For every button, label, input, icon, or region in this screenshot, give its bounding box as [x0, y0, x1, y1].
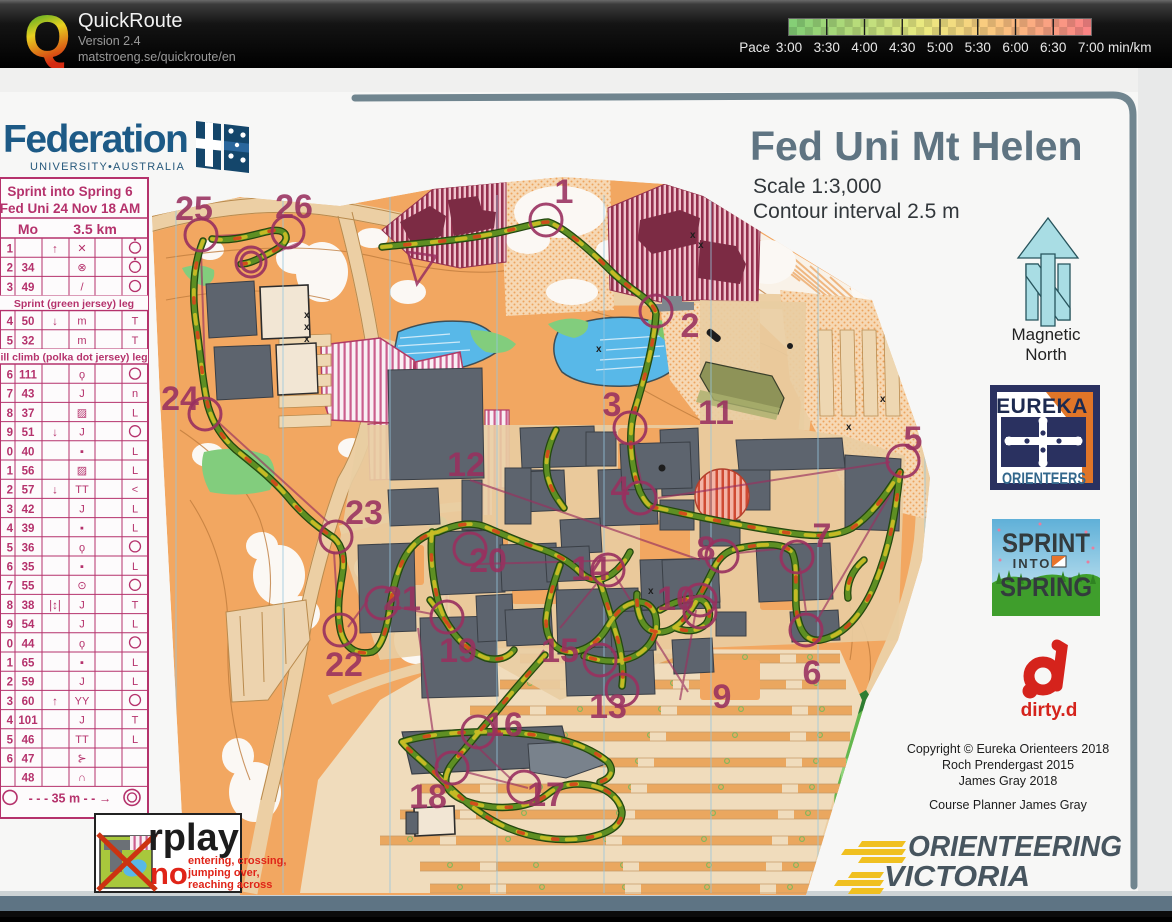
svg-text:9: 9	[7, 427, 13, 439]
svg-text:SPRING: SPRING	[1000, 572, 1092, 602]
svg-text:J: J	[79, 619, 85, 631]
svg-text:6: 6	[7, 370, 13, 382]
svg-text:24: 24	[161, 380, 199, 418]
svg-text:4: 4	[7, 715, 14, 727]
svg-text:7: 7	[7, 581, 13, 593]
svg-text:L: L	[132, 561, 138, 573]
svg-text:↓: ↓	[52, 427, 58, 439]
svg-text:40: 40	[22, 446, 35, 458]
svg-text:38: 38	[22, 600, 35, 612]
svg-text:L: L	[132, 503, 138, 515]
svg-text:✕: ✕	[77, 243, 86, 255]
svg-text:5:30: 5:30	[965, 40, 991, 55]
svg-text:reaching across: reaching across	[188, 879, 272, 891]
svg-text:dirty.d: dirty.d	[1021, 700, 1078, 721]
svg-text:59: 59	[22, 677, 35, 689]
svg-text:3:00: 3:00	[776, 40, 802, 55]
svg-text:ϙ: ϙ	[79, 638, 85, 650]
svg-text:21: 21	[383, 580, 421, 618]
svg-text:⊙: ⊙	[77, 580, 86, 592]
svg-text:60: 60	[22, 696, 35, 708]
svg-text:J: J	[79, 388, 85, 400]
svg-text:<: <	[132, 484, 138, 496]
svg-text:16: 16	[485, 706, 523, 744]
svg-text:3:30: 3:30	[814, 40, 840, 55]
svg-text:36: 36	[22, 542, 35, 554]
svg-text:35: 35	[22, 562, 35, 574]
svg-text:UNIVERSITY•AUSTRALIA: UNIVERSITY•AUSTRALIA	[30, 161, 185, 173]
svg-text:20: 20	[469, 542, 507, 580]
svg-text:L: L	[132, 657, 138, 669]
svg-text:J: J	[79, 427, 85, 439]
svg-text:37: 37	[22, 408, 35, 420]
svg-text:ORIENTEERS: ORIENTEERS	[1002, 469, 1086, 488]
svg-text:2: 2	[7, 263, 13, 275]
svg-text:Scale 1:3,000: Scale 1:3,000	[753, 175, 881, 198]
svg-text:Contour interval 2.5 m: Contour interval 2.5 m	[753, 200, 960, 223]
svg-text:46: 46	[22, 734, 35, 746]
svg-text:Fed Uni 24 Nov 18 AM: Fed Uni 24 Nov 18 AM	[0, 201, 140, 216]
svg-text:Course Planner James Gray: Course Planner James Gray	[929, 798, 1087, 812]
svg-text:39: 39	[22, 523, 35, 535]
svg-text:7:00: 7:00	[1078, 40, 1104, 55]
svg-text:▪: ▪	[80, 523, 84, 535]
svg-text:32: 32	[22, 335, 35, 347]
svg-text:26: 26	[275, 188, 313, 226]
svg-text:4: 4	[7, 523, 14, 535]
svg-text:no: no	[150, 856, 188, 891]
svg-text:↑: ↑	[52, 696, 58, 708]
svg-text:4: 4	[7, 316, 14, 328]
svg-text:▨: ▨	[77, 407, 87, 419]
svg-text:9: 9	[713, 678, 732, 716]
svg-text:Pace: Pace	[739, 40, 770, 55]
svg-text:▪: ▪	[80, 657, 84, 669]
svg-text:jumping over,: jumping over,	[187, 867, 260, 879]
svg-text:Version 2.4: Version 2.4	[78, 34, 141, 48]
svg-text:47: 47	[22, 754, 35, 766]
svg-text:↓: ↓	[52, 316, 58, 328]
svg-text:x: x	[596, 344, 602, 355]
svg-text:4:00: 4:00	[851, 40, 877, 55]
svg-text:▨: ▨	[77, 465, 87, 477]
svg-text:15: 15	[541, 632, 579, 670]
svg-text:12: 12	[447, 446, 485, 484]
svg-text:42: 42	[22, 504, 35, 516]
svg-text:∩: ∩	[78, 772, 86, 784]
svg-text:VICTORIA: VICTORIA	[884, 861, 1030, 893]
svg-text:5: 5	[904, 420, 923, 458]
svg-text:7: 7	[813, 517, 832, 555]
svg-text:x: x	[648, 586, 654, 597]
svg-text:2: 2	[7, 485, 13, 497]
svg-text:6:00: 6:00	[1002, 40, 1028, 55]
svg-text:23: 23	[345, 494, 383, 532]
svg-text:6: 6	[7, 562, 13, 574]
svg-text:5: 5	[7, 335, 14, 347]
svg-text:Copyright © Eureka Orienteers: Copyright © Eureka Orienteers 2018	[907, 742, 1109, 756]
svg-text:1: 1	[7, 466, 14, 478]
svg-text:8: 8	[7, 408, 14, 420]
svg-text:17: 17	[527, 776, 565, 814]
svg-text:Q: Q	[24, 3, 71, 70]
svg-text:4: 4	[611, 470, 630, 508]
svg-text:m: m	[77, 335, 86, 347]
svg-text:19: 19	[439, 632, 477, 670]
svg-text:56: 56	[22, 466, 35, 478]
svg-text:L: L	[132, 676, 138, 688]
svg-text:⊗: ⊗	[77, 262, 86, 274]
svg-text:x: x	[880, 394, 886, 405]
svg-text:10: 10	[657, 580, 695, 618]
svg-text:James Gray 2018: James Gray 2018	[959, 774, 1058, 788]
svg-text:5: 5	[7, 734, 14, 746]
svg-text:L: L	[132, 734, 138, 746]
svg-text:QuickRoute: QuickRoute	[78, 10, 183, 32]
svg-text:L: L	[132, 523, 138, 535]
svg-text:▪: ▪	[80, 561, 84, 573]
svg-text:6:30: 6:30	[1040, 40, 1066, 55]
svg-text:ill climb (polka dot jersey) l: ill climb (polka dot jersey) leg	[0, 352, 147, 364]
svg-text:18: 18	[409, 778, 447, 816]
svg-text:L: L	[132, 446, 138, 458]
svg-text:T: T	[132, 335, 139, 347]
svg-text:3: 3	[7, 696, 13, 708]
svg-text:Mo: Mo	[18, 221, 38, 237]
svg-text:T: T	[132, 715, 139, 727]
svg-text:101: 101	[18, 715, 38, 727]
svg-text:x: x	[690, 230, 696, 241]
svg-text:- - - 35 m - - →: - - - 35 m - - →	[29, 791, 112, 805]
svg-text:x: x	[304, 334, 310, 345]
svg-text:Sprint into Spring 6: Sprint into Spring 6	[7, 184, 133, 199]
svg-text:Roch Prendergast 2015: Roch Prendergast 2015	[942, 758, 1074, 772]
svg-text:3: 3	[603, 386, 622, 424]
svg-text:1: 1	[7, 658, 14, 670]
svg-text:6: 6	[803, 654, 822, 692]
svg-text:INTO: INTO	[1013, 556, 1052, 571]
svg-text:T: T	[132, 316, 139, 328]
svg-text:54: 54	[22, 619, 35, 631]
svg-text:8: 8	[697, 530, 716, 568]
svg-text:0: 0	[7, 638, 13, 650]
svg-text:2: 2	[7, 677, 13, 689]
svg-text:North: North	[1025, 345, 1067, 364]
svg-text:x: x	[698, 240, 704, 251]
svg-text:5: 5	[7, 542, 14, 554]
svg-text:11: 11	[698, 394, 734, 432]
svg-text:65: 65	[22, 658, 35, 670]
svg-text:43: 43	[22, 389, 35, 401]
svg-text:4:30: 4:30	[889, 40, 915, 55]
svg-text:EUREKA: EUREKA	[996, 395, 1088, 418]
svg-text:Fed Uni Mt Helen: Fed Uni Mt Helen	[750, 123, 1083, 169]
svg-text:9: 9	[7, 619, 13, 631]
svg-text:2: 2	[681, 307, 700, 345]
svg-text:⊱: ⊱	[77, 753, 86, 765]
svg-text:Federation: Federation	[3, 118, 187, 161]
svg-text:3: 3	[7, 282, 13, 294]
svg-text:25: 25	[175, 190, 213, 228]
svg-text:3: 3	[7, 504, 13, 516]
svg-text:50: 50	[22, 316, 35, 328]
svg-text:34: 34	[22, 263, 35, 275]
svg-text:51: 51	[22, 427, 35, 439]
svg-text:x: x	[304, 310, 310, 321]
svg-text:57: 57	[22, 485, 35, 497]
svg-text:49: 49	[22, 282, 35, 294]
svg-text:▪: ▪	[80, 446, 84, 458]
svg-text:1: 1	[555, 173, 574, 211]
svg-text:8: 8	[7, 600, 14, 612]
svg-text:|↕|: |↕|	[49, 600, 61, 612]
svg-text:14: 14	[571, 550, 609, 588]
svg-text:x: x	[846, 422, 852, 433]
svg-text:min/km: min/km	[1108, 40, 1152, 55]
svg-text:T: T	[132, 599, 139, 611]
svg-text:44: 44	[22, 638, 35, 650]
svg-text:22: 22	[325, 646, 363, 684]
svg-text:ϙ: ϙ	[79, 542, 85, 554]
svg-text:YY: YY	[75, 695, 90, 707]
svg-text:13: 13	[589, 688, 627, 726]
svg-text:Sprint (green jersey) leg: Sprint (green jersey) leg	[14, 298, 134, 310]
svg-text:7: 7	[7, 389, 13, 401]
svg-text:n: n	[132, 388, 138, 400]
svg-text:6: 6	[7, 754, 13, 766]
svg-text:L: L	[132, 619, 138, 631]
svg-text:48: 48	[22, 773, 35, 785]
svg-text:rplay: rplay	[148, 817, 239, 859]
svg-text:↓: ↓	[52, 485, 58, 497]
svg-text:TT: TT	[75, 484, 89, 496]
svg-text:J: J	[79, 503, 85, 515]
svg-text:↑: ↑	[52, 244, 58, 256]
svg-text:TT: TT	[75, 734, 89, 746]
svg-text:J: J	[79, 676, 85, 688]
svg-text:0: 0	[7, 446, 13, 458]
svg-text:55: 55	[22, 581, 35, 593]
svg-text:ORIENTEERING: ORIENTEERING	[908, 831, 1122, 863]
svg-text:matstroeng.se/quickroute/en: matstroeng.se/quickroute/en	[78, 50, 236, 64]
svg-text:L: L	[132, 465, 138, 477]
svg-text:5:00: 5:00	[927, 40, 953, 55]
svg-text:111: 111	[19, 370, 38, 382]
svg-text:L: L	[132, 407, 138, 419]
svg-text:x: x	[304, 322, 310, 333]
svg-text:J: J	[79, 599, 85, 611]
svg-text:J: J	[79, 715, 85, 727]
svg-text:SPRINT: SPRINT	[1002, 528, 1090, 558]
svg-text:entering, crossing,: entering, crossing,	[188, 855, 286, 867]
svg-text:m: m	[77, 316, 86, 328]
svg-text:Magnetic: Magnetic	[1012, 325, 1081, 344]
svg-text:3.5 km: 3.5 km	[73, 221, 117, 237]
svg-text:1: 1	[7, 244, 14, 256]
svg-text:ϙ: ϙ	[79, 369, 85, 381]
